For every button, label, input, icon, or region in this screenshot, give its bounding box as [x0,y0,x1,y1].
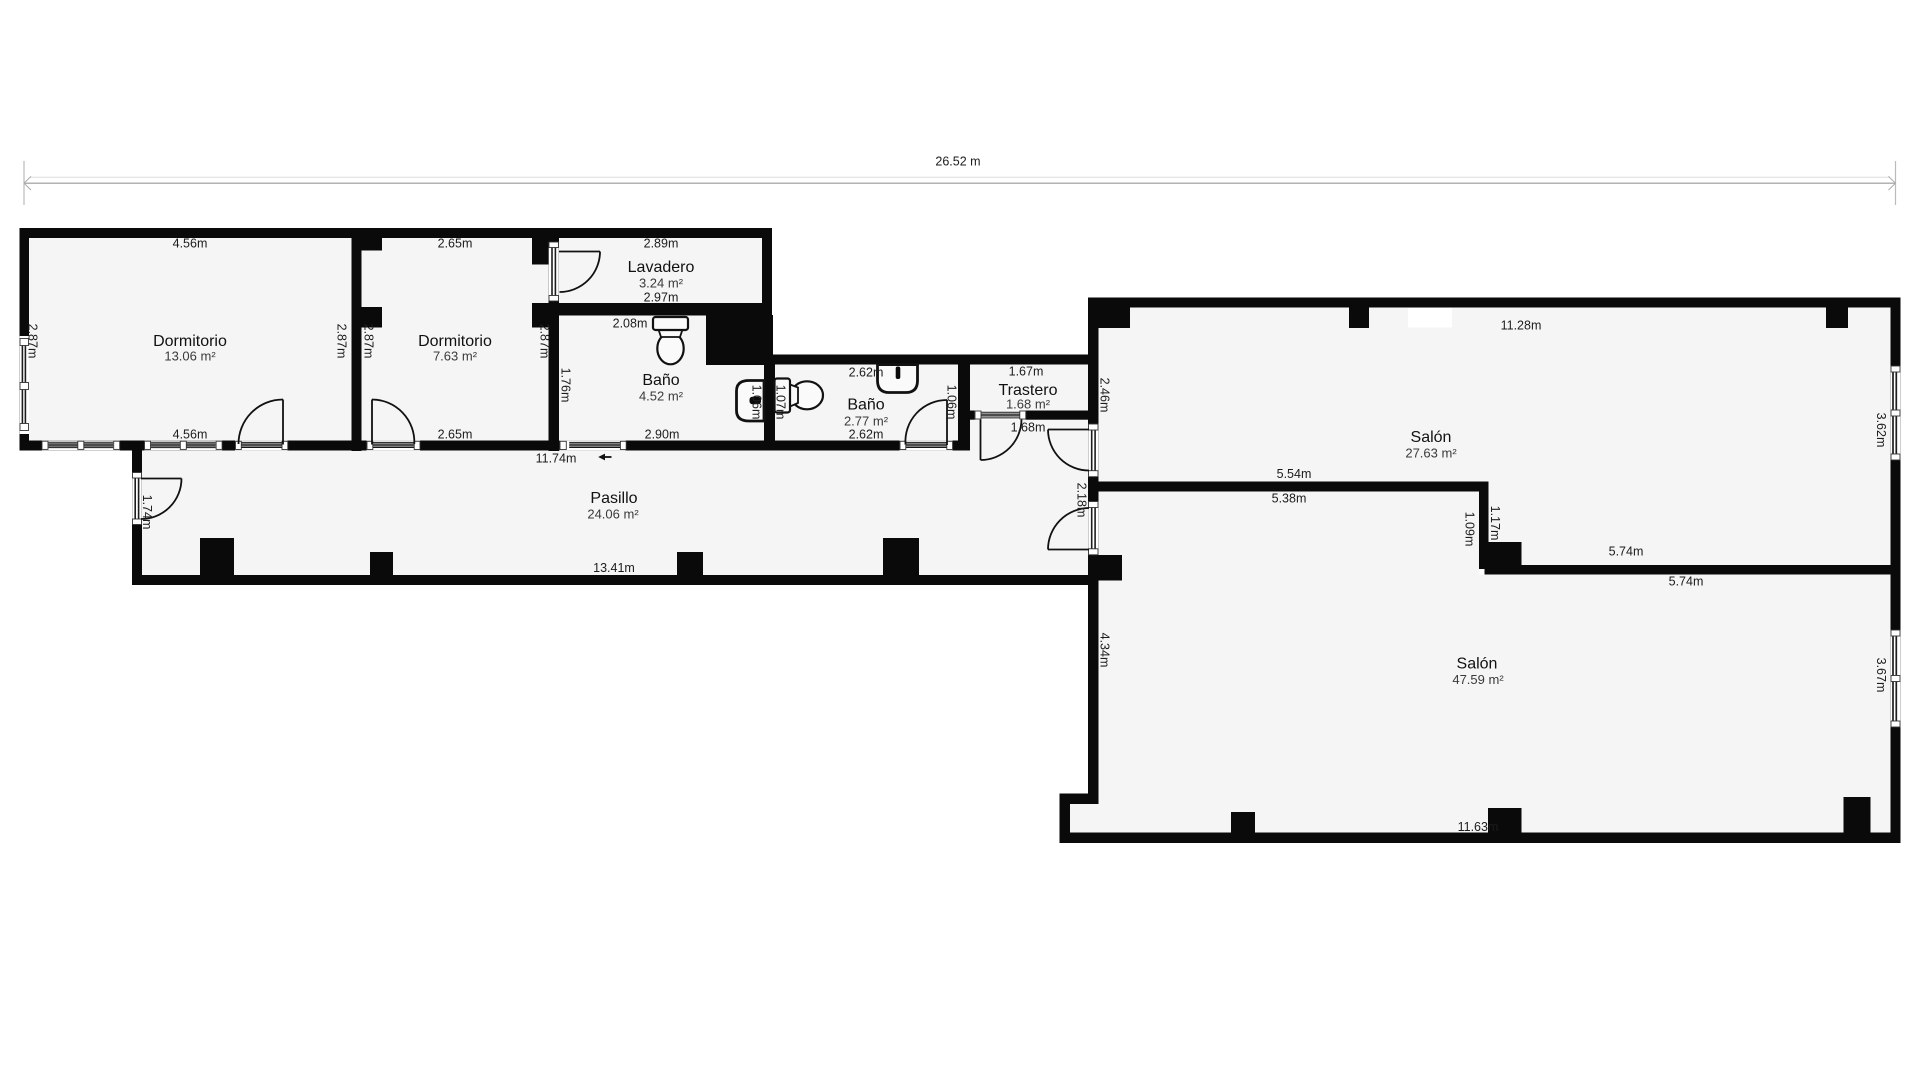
svg-text:27.63 m²: 27.63 m² [1405,446,1457,461]
svg-text:2.87m: 2.87m [538,324,552,359]
svg-text:2.62m: 2.62m [849,366,884,380]
svg-text:1.74m: 1.74m [140,495,154,530]
svg-text:5.54m: 5.54m [1277,467,1312,481]
svg-text:1.06m: 1.06m [945,385,959,420]
svg-text:11.74m: 11.74m [536,452,577,466]
svg-text:5.38m: 5.38m [1272,492,1307,506]
svg-text:3.62m: 3.62m [1874,413,1888,448]
svg-text:4.56m: 4.56m [173,237,208,251]
svg-text:3.24 m²: 3.24 m² [639,276,684,291]
svg-text:Dormitorio: Dormitorio [153,333,227,350]
svg-text:1.17m: 1.17m [1488,506,1502,541]
svg-text:2.87m: 2.87m [362,324,376,359]
svg-text:Salón: Salón [1411,429,1452,446]
svg-text:4.56m: 4.56m [173,428,208,442]
svg-text:11.63m: 11.63m [1458,820,1499,834]
svg-text:11.28m: 11.28m [1501,319,1542,333]
svg-text:1.67m: 1.67m [1009,365,1044,379]
svg-text:1.09m: 1.09m [1463,512,1477,547]
svg-text:2.87m: 2.87m [335,324,349,359]
svg-text:Dormitorio: Dormitorio [418,333,492,350]
svg-text:1.76m: 1.76m [559,368,573,403]
svg-text:2.08m: 2.08m [613,317,648,331]
svg-text:5.74m: 5.74m [1609,545,1644,559]
svg-text:24.06 m²: 24.06 m² [587,507,639,522]
svg-text:47.59 m²: 47.59 m² [1452,672,1504,687]
svg-text:2.77 m²: 2.77 m² [844,414,889,429]
svg-text:2.65m: 2.65m [438,237,473,251]
svg-text:2.65m: 2.65m [438,428,473,442]
svg-text:4.34m: 4.34m [1098,633,1112,668]
svg-text:1.68m: 1.68m [1011,421,1046,435]
svg-text:7.63 m²: 7.63 m² [433,349,478,364]
svg-text:1.68 m²: 1.68 m² [1006,397,1051,412]
svg-text:Salón: Salón [1457,656,1498,673]
svg-text:1.06m: 1.06m [750,385,764,420]
svg-text:2.62m: 2.62m [849,428,884,442]
svg-text:2.90m: 2.90m [645,428,680,442]
svg-text:5.74m: 5.74m [1669,575,1704,589]
svg-text:Lavadero: Lavadero [628,259,695,276]
svg-text:Pasillo: Pasillo [590,490,637,507]
svg-text:13.06 m²: 13.06 m² [164,349,216,364]
svg-text:1.07m: 1.07m [774,385,788,420]
svg-text:3.67m: 3.67m [1874,658,1888,693]
svg-text:2.87m: 2.87m [26,324,40,359]
svg-text:4.52 m²: 4.52 m² [639,389,684,404]
svg-text:13.41m: 13.41m [593,561,635,575]
svg-text:2.18m: 2.18m [1075,483,1089,518]
svg-text:2.97m: 2.97m [644,291,679,305]
svg-text:Baño: Baño [642,372,679,389]
svg-text:26.52 m: 26.52 m [935,155,980,169]
svg-text:2.89m: 2.89m [644,237,679,251]
svg-text:Baño: Baño [847,397,884,414]
svg-text:2.46m: 2.46m [1098,378,1112,413]
